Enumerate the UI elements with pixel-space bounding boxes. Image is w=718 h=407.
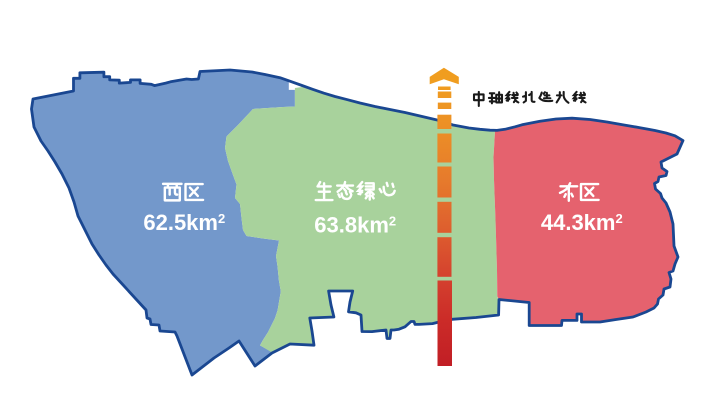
svg-text:62.5km2: 62.5km2 xyxy=(143,210,225,235)
svg-text:44.3km2: 44.3km2 xyxy=(541,210,623,235)
svg-text:63.8km2: 63.8km2 xyxy=(314,213,396,238)
